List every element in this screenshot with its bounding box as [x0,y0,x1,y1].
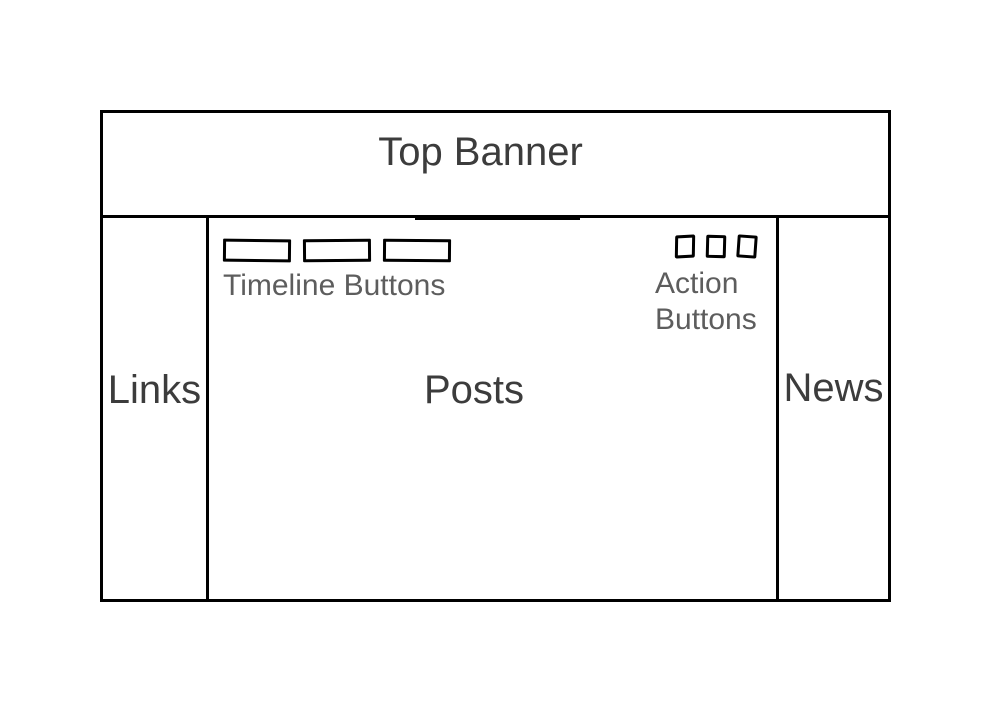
timeline-button-placeholder[interactable] [223,239,291,263]
wireframe-frame: Top Banner Links Posts News Timeline But… [100,110,891,602]
action-buttons-caption-line1: Action [655,266,757,302]
action-button-placeholder[interactable] [706,235,727,259]
action-buttons-group [675,235,757,258]
timeline-buttons-group [223,239,451,262]
action-buttons-caption: Action Buttons [655,266,757,338]
timeline-button-placeholder[interactable] [303,239,371,263]
timeline-button-placeholder[interactable] [383,239,451,263]
action-button-placeholder[interactable] [675,234,695,258]
banner-divider-overlap-stroke [415,218,580,220]
timeline-buttons-caption: Timeline Buttons [223,268,445,304]
action-button-placeholder[interactable] [736,234,758,258]
action-buttons-caption-line2: Buttons [655,302,757,338]
banner-label: Top Banner [103,129,858,175]
news-sidebar-label: News [779,365,888,411]
posts-area-label: Posts [209,367,739,413]
links-sidebar-label: Links [103,367,206,413]
